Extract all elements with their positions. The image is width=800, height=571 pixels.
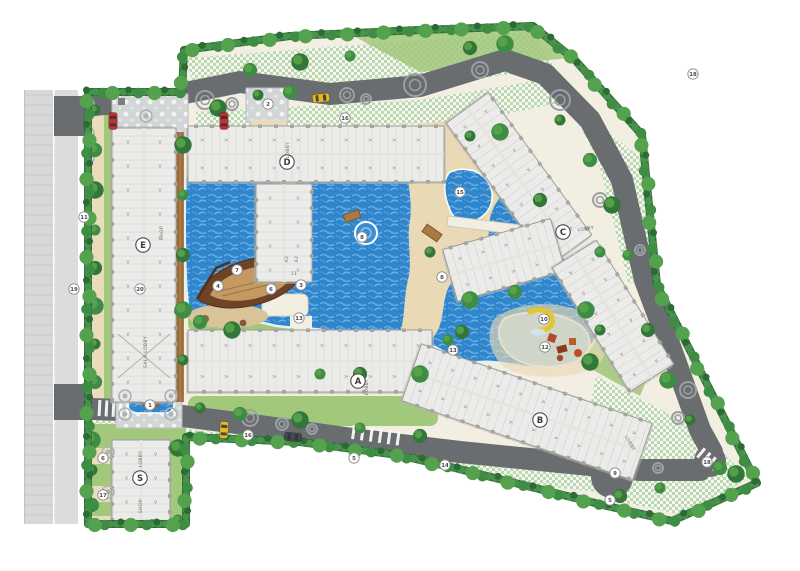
svg-text:9: 9: [613, 471, 617, 477]
svg-text:20: 20: [136, 287, 144, 293]
hedge-tree-icon: [652, 512, 666, 526]
hedge-tree-icon: [655, 292, 669, 306]
hedge-tree-icon: [83, 511, 90, 518]
map-marker: 6: [98, 453, 108, 463]
map-marker: 18: [702, 457, 712, 467]
hedge-tree-icon: [547, 34, 554, 41]
tree-icon: [178, 355, 189, 366]
map-marker: 13: [294, 313, 304, 323]
hedge-tree-icon: [510, 21, 517, 28]
svg-text:17: 17: [99, 493, 107, 499]
plan-text: A2: [284, 256, 290, 263]
hedge-tree-icon: [86, 238, 93, 245]
hedge-tree-icon: [179, 443, 190, 454]
tree-icon: [233, 407, 247, 421]
hedge-tree-icon: [312, 438, 326, 452]
building-label: B: [533, 413, 547, 427]
map-marker: 10: [539, 314, 549, 324]
hedge-tree-icon: [83, 433, 90, 440]
hedge-tree-icon: [670, 516, 681, 527]
tree-icon: [685, 415, 696, 426]
building-label: A: [351, 374, 365, 388]
hedge-tree-icon: [541, 485, 555, 499]
hedge-tree-icon: [711, 396, 725, 410]
hedge-tree-icon: [84, 109, 95, 120]
hedge-tree-icon: [79, 250, 93, 264]
tree-icon: [174, 301, 191, 318]
tree-icon: [461, 291, 478, 308]
hedge-tree-icon: [646, 243, 657, 254]
map-marker: 9: [610, 468, 620, 478]
hedge-tree-icon: [576, 494, 590, 508]
svg-text:19: 19: [70, 287, 78, 293]
building-label: C: [556, 225, 570, 239]
tree-icon: [581, 353, 598, 370]
hedge-tree-icon: [390, 449, 404, 463]
hedge-tree-icon: [83, 277, 90, 284]
hedge-tree-icon: [682, 339, 689, 346]
hedge-tree-icon: [642, 216, 656, 230]
map-marker: 20: [135, 284, 145, 294]
hedge-tree-icon: [495, 473, 502, 480]
hedge-tree-icon: [643, 190, 650, 197]
hedge-tree-icon: [746, 466, 760, 480]
hedge-tree-icon: [240, 37, 247, 44]
hedge-tree-icon: [603, 88, 610, 95]
hedge-tree-icon: [739, 456, 750, 467]
tree-icon: [583, 153, 597, 167]
map-marker: 16: [340, 113, 350, 123]
map-marker: 15: [455, 187, 465, 197]
tree-icon: [465, 131, 476, 142]
hedge-tree-icon: [496, 21, 510, 35]
car-icon: [219, 421, 229, 439]
hedge-tree-icon: [724, 421, 735, 432]
svg-text:14: 14: [441, 463, 449, 469]
map-marker: 17: [98, 490, 108, 500]
hedge-tree-icon: [676, 327, 690, 341]
tree-icon: [455, 325, 469, 339]
hedge-tree-icon: [141, 520, 152, 531]
hedge-tree-icon: [326, 30, 337, 41]
hedge-tree-icon: [88, 518, 102, 532]
building-d-wing: AAAAAAAA: [254, 182, 314, 284]
hedge-tree-icon: [79, 406, 93, 420]
tree-icon: [659, 371, 676, 388]
hedge-tree-icon: [725, 431, 739, 445]
hedge-tree-icon: [690, 361, 704, 375]
map-marker: 11: [79, 212, 89, 222]
tree-icon: [355, 423, 366, 434]
hedge-tree-icon: [418, 24, 432, 38]
tree-icon: [223, 321, 240, 338]
hedge-tree-icon: [276, 32, 283, 39]
tree-icon: [595, 247, 606, 258]
hedge-tree-icon: [617, 504, 631, 518]
svg-text:16: 16: [341, 116, 349, 122]
hedge-tree-icon: [264, 435, 271, 442]
hedge-tree-icon: [199, 42, 206, 49]
svg-text:4: 4: [216, 284, 220, 290]
svg-text:8: 8: [360, 235, 364, 241]
hedge-tree-icon: [86, 472, 93, 479]
car-icon: [312, 93, 330, 103]
hedge-tree-icon: [717, 408, 724, 415]
hedge-tree-icon: [84, 421, 95, 432]
hedge-tree-icon: [719, 494, 726, 501]
tree-icon: [291, 53, 308, 70]
hedge-tree-icon: [83, 87, 90, 94]
hedge-tree-icon: [81, 382, 92, 393]
hedge-tree-icon: [124, 518, 138, 532]
hedge-tree-icon: [639, 166, 650, 177]
hedge-tree-icon: [354, 27, 361, 34]
tree-icon: [243, 63, 257, 77]
hedge-tree-icon: [79, 94, 93, 108]
tree-icon: [555, 115, 566, 126]
hedge-tree-icon: [153, 519, 160, 526]
tree-icon: [577, 301, 594, 318]
hedge-tree-icon: [419, 455, 426, 462]
hedge-tree-icon: [641, 177, 655, 191]
hedge-tree-icon: [249, 36, 260, 47]
tree-icon: [623, 250, 634, 261]
hedge-tree-icon: [147, 86, 161, 100]
tree-icon: [411, 365, 428, 382]
hedge-tree-icon: [594, 499, 605, 510]
svg-text:E: E: [140, 241, 146, 251]
hedge-tree-icon: [741, 484, 752, 495]
map-marker: 2: [263, 99, 273, 109]
hedge-tree-icon: [125, 87, 132, 94]
hedge-tree-icon: [185, 43, 199, 57]
tree-icon: [345, 51, 356, 62]
hedge-tree-icon: [366, 447, 377, 458]
hedge-tree-icon: [724, 488, 738, 502]
svg-text:5: 5: [608, 498, 612, 504]
hedge-tree-icon: [751, 478, 758, 485]
plan-text: SHOP: [159, 226, 165, 240]
hedge-tree-icon: [703, 374, 710, 381]
svg-text:5: 5: [352, 456, 356, 462]
hedge-tree-icon: [466, 466, 480, 480]
hedge-tree-icon: [263, 33, 277, 47]
hedge-tree-icon: [650, 229, 657, 236]
hedge-tree-icon: [82, 289, 96, 303]
hedge-tree-icon: [105, 86, 119, 100]
svg-text:1: 1: [148, 403, 152, 409]
map-marker: 14: [440, 460, 450, 470]
hedge-tree-icon: [81, 226, 92, 237]
plan-text: SHOP: [138, 499, 144, 513]
hedge-tree-icon: [83, 199, 90, 206]
tree-icon: [713, 461, 727, 475]
hedge-tree-icon: [425, 457, 439, 471]
svg-text:C: C: [560, 228, 566, 238]
hedge-tree-icon: [667, 304, 674, 311]
hedge-tree-icon: [83, 121, 90, 128]
hedge-tree-icon: [501, 475, 515, 489]
hedge-tree-icon: [454, 22, 468, 36]
hedge-tree-icon: [298, 29, 312, 43]
car-icon: [109, 113, 117, 130]
hedge-tree-icon: [552, 43, 563, 54]
hedge-tree-icon: [668, 317, 679, 328]
hedge-tree-icon: [574, 59, 581, 66]
hedge-tree-icon: [186, 432, 193, 439]
tree-icon: [253, 90, 264, 101]
car-icon: [220, 113, 228, 130]
plan-text: 11: [291, 271, 298, 277]
tree-icon: [641, 323, 655, 337]
svg-text:B: B: [537, 416, 543, 426]
svg-text:2: 2: [266, 102, 270, 108]
hedge-tree-icon: [689, 352, 700, 363]
tree-icon: [425, 247, 436, 258]
hedge-tree-icon: [376, 26, 390, 40]
car-icon: [284, 432, 302, 442]
hedge-tree-icon: [377, 447, 384, 454]
tree-icon: [443, 335, 454, 346]
tree-icon: [193, 315, 207, 329]
hedge-tree-icon: [221, 38, 235, 52]
tree-icon: [533, 193, 547, 207]
hedge-tree-icon: [81, 460, 92, 471]
hedge-tree-icon: [340, 27, 354, 41]
tree-icon: [283, 85, 297, 99]
hedge-tree-icon: [133, 88, 144, 99]
svg-text:6: 6: [101, 456, 105, 462]
hedge-tree-icon: [79, 328, 93, 342]
master-plan-illustration: AAAAAAAAAAAAAAAAAAAAAAAAAAAAAAAAAAAAAAAA…: [0, 0, 800, 571]
svg-text:11: 11: [80, 215, 88, 221]
hedge-tree-icon: [166, 518, 180, 532]
svg-text:13: 13: [449, 348, 457, 354]
map-marker: 12: [540, 342, 550, 352]
hedge-tree-icon: [342, 442, 349, 449]
map-marker: 8: [357, 232, 367, 242]
tree-icon: [508, 285, 522, 299]
hedge-tree-icon: [84, 343, 95, 354]
map-marker: 1: [145, 400, 155, 410]
public-road-left: [24, 90, 80, 524]
svg-text:3: 3: [299, 283, 303, 289]
hedge-tree-icon: [649, 254, 663, 268]
building-d: AAAAAAAAAAAAAAAAAAAA: [186, 125, 446, 185]
map-marker: 19: [69, 284, 79, 294]
building-label: S: [133, 471, 147, 485]
tree-icon: [491, 123, 508, 140]
tree-icon: [178, 190, 189, 201]
tree-icon: [195, 403, 206, 414]
svg-text:16: 16: [244, 433, 252, 439]
tree-icon: [727, 465, 744, 482]
svg-text:18: 18: [703, 460, 711, 466]
site-plan-canvas: AAAAAAAAAAAAAAAAAAAAAAAAAAAAAAAAAAAAAAAA…: [0, 0, 800, 571]
hedge-tree-icon: [83, 355, 90, 362]
hedge-tree-icon: [530, 25, 544, 39]
map-marker: 3: [296, 280, 306, 290]
hedge-tree-icon: [84, 187, 95, 198]
hedge-tree-icon: [570, 492, 577, 499]
plan-text: A2: [294, 256, 300, 263]
hedge-tree-icon: [84, 499, 95, 510]
tree-icon: [413, 429, 427, 443]
map-marker: 8: [437, 272, 447, 282]
svg-text:12: 12: [541, 345, 549, 351]
hedge-tree-icon: [86, 160, 93, 167]
hedge-tree-icon: [636, 128, 647, 139]
hedge-tree-icon: [588, 78, 602, 92]
map-marker: 7: [232, 265, 242, 275]
hedge-tree-icon: [432, 24, 439, 31]
svg-text:8: 8: [440, 275, 444, 281]
hedge-tree-icon: [177, 52, 188, 63]
hedge-tree-icon: [518, 480, 529, 491]
svg-text:10: 10: [540, 317, 548, 323]
hedge-tree-icon: [184, 507, 191, 514]
svg-text:18: 18: [689, 72, 697, 78]
hedge-tree-icon: [86, 394, 93, 401]
hedge-tree-icon: [193, 431, 207, 445]
map-marker: 13: [448, 345, 458, 355]
hedge-tree-icon: [318, 29, 325, 36]
tree-icon: [315, 369, 326, 380]
hedge-tree-icon: [79, 484, 93, 498]
hedge-tree-icon: [646, 205, 657, 216]
tree-icon: [174, 136, 191, 153]
hedge-tree-icon: [654, 282, 665, 293]
hedge-tree-icon: [454, 463, 461, 470]
hedge-tree-icon: [651, 268, 658, 275]
map-marker: 5: [605, 495, 615, 505]
tree-icon: [603, 196, 620, 213]
tree-icon: [655, 483, 666, 494]
hedge-tree-icon: [738, 443, 745, 450]
hedge-tree-icon: [177, 494, 191, 508]
map-marker: 4: [213, 281, 223, 291]
hedge-tree-icon: [607, 99, 618, 110]
hedge-tree-icon: [704, 386, 715, 397]
svg-text:S: S: [137, 474, 143, 484]
map-marker: 16: [243, 430, 253, 440]
hedge-tree-icon: [82, 133, 96, 147]
hedge-tree-icon: [181, 64, 188, 71]
plan-text: LOBBY: [138, 451, 144, 468]
hedge-tree-icon: [81, 304, 92, 315]
hedge-tree-icon: [634, 138, 648, 152]
plan-text: LOBBY: [364, 379, 370, 396]
plan-text: SALA LOBBY: [143, 336, 149, 368]
hedge-tree-icon: [180, 455, 194, 469]
hedge-tree-icon: [626, 117, 633, 124]
building-label: E: [136, 238, 150, 252]
hedge-tree-icon: [181, 468, 188, 475]
hedge-tree-icon: [529, 482, 536, 489]
tree-icon: [595, 325, 606, 336]
map-marker: 18: [688, 69, 698, 79]
hedge-tree-icon: [404, 26, 415, 37]
map-marker: 5: [349, 453, 359, 463]
hedge-tree-icon: [182, 482, 193, 493]
hedge-tree-icon: [82, 445, 96, 459]
svg-text:13: 13: [295, 316, 303, 322]
building-a: AAAAAAAAAAAAAAAAAAAA: [186, 329, 434, 395]
tree-icon: [496, 35, 513, 52]
hedge-tree-icon: [81, 148, 92, 159]
hedge-tree-icon: [161, 87, 168, 94]
hedge-tree-icon: [82, 367, 96, 381]
hedge-tree-icon: [474, 23, 481, 30]
hedge-tree-icon: [396, 26, 403, 33]
plan-text: LOBBY: [285, 142, 291, 159]
svg-text:6: 6: [269, 287, 273, 293]
tree-icon: [291, 411, 308, 428]
hedge-tree-icon: [174, 76, 188, 90]
tree-icon: [176, 248, 190, 262]
hedge-tree-icon: [84, 265, 95, 276]
hedge-tree-icon: [79, 172, 93, 186]
svg-text:15: 15: [456, 190, 464, 196]
hedge-tree-icon: [642, 152, 649, 159]
tree-icon: [463, 41, 477, 55]
hedge-tree-icon: [680, 510, 687, 517]
hedge-tree-icon: [86, 316, 93, 323]
svg-text:A: A: [355, 377, 362, 387]
hedge-tree-icon: [691, 504, 705, 518]
hedge-tree-icon: [482, 23, 493, 34]
svg-text:7: 7: [235, 268, 239, 274]
map-marker: 6: [266, 284, 276, 294]
hedge-tree-icon: [271, 435, 285, 449]
hedge-tree-icon: [646, 510, 653, 517]
hedge-tree-icon: [117, 519, 124, 526]
